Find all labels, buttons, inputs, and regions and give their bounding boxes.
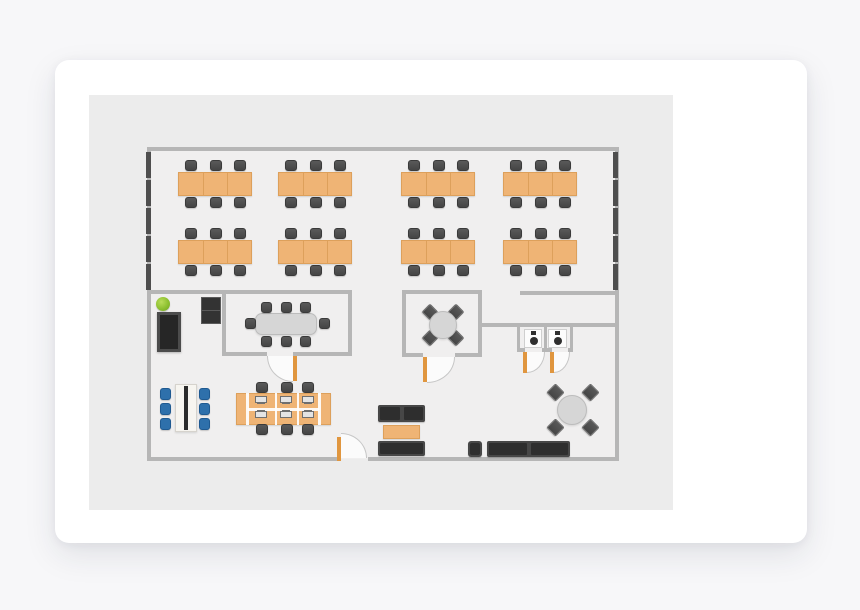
window: [146, 208, 151, 234]
chair: [302, 424, 314, 435]
window: [613, 236, 618, 262]
chair: [160, 388, 171, 400]
wall: [520, 291, 619, 295]
desk-chair: [185, 160, 197, 171]
computer-monitor: [301, 396, 315, 404]
desk-chair: [510, 197, 522, 208]
wall: [455, 353, 482, 357]
armchair: [468, 441, 482, 457]
desk-cluster: [503, 240, 577, 264]
desk-chair: [185, 265, 197, 276]
desk-chair: [535, 228, 547, 239]
desk-chair: [510, 160, 522, 171]
desk-chair: [535, 197, 547, 208]
wall: [147, 290, 226, 294]
desk-chair: [310, 160, 322, 171]
desk-chair: [234, 197, 246, 208]
wall: [402, 290, 406, 357]
chair: [256, 382, 268, 393]
chair: [160, 418, 171, 430]
desk-chair: [433, 228, 445, 239]
toilet: [529, 331, 538, 346]
window: [146, 236, 151, 262]
wall: [147, 457, 341, 461]
round-table: [429, 311, 457, 339]
desk-chair: [310, 197, 322, 208]
door-leaf: [523, 352, 527, 373]
desk-chair: [408, 228, 420, 239]
desk-chair: [234, 265, 246, 276]
window: [613, 264, 618, 290]
wall: [482, 323, 619, 327]
wall: [222, 290, 352, 294]
chair: [261, 336, 272, 347]
chair: [160, 403, 171, 415]
window: [146, 152, 151, 178]
window: [146, 264, 151, 290]
computer-monitor: [279, 396, 293, 404]
desk-chair: [210, 160, 222, 171]
desk-chair: [185, 197, 197, 208]
computer-monitor: [254, 410, 268, 418]
desk-chair: [285, 160, 297, 171]
desk-chair: [510, 228, 522, 239]
coffee-table: [383, 425, 420, 439]
computer-monitor: [301, 410, 315, 418]
desk-chair: [234, 160, 246, 171]
desk-chair: [408, 197, 420, 208]
floorplan-card: [55, 60, 807, 543]
chair: [319, 318, 330, 329]
desk-chair: [559, 265, 571, 276]
desk-cluster: [178, 172, 252, 196]
desk-cluster: [401, 240, 475, 264]
desk-chair: [285, 228, 297, 239]
plant: [156, 297, 170, 311]
door-leaf: [550, 352, 554, 373]
sofa: [378, 405, 425, 422]
chair: [281, 336, 292, 347]
page-background: { "palette": { "pagebg":"#f7f7f9","cardb…: [0, 0, 860, 610]
chair: [256, 424, 268, 435]
floorplan-canvas: [89, 95, 673, 510]
desk-chair: [535, 265, 547, 276]
desk-cluster: [401, 172, 475, 196]
wall: [402, 290, 482, 294]
computer-monitor: [279, 410, 293, 418]
toilet: [553, 331, 562, 346]
storage-cabinet: [201, 297, 223, 325]
chair: [281, 424, 293, 435]
chair: [199, 403, 210, 415]
chair: [302, 382, 314, 393]
desk-chair: [210, 197, 222, 208]
desk-chair: [310, 265, 322, 276]
desk-chair: [334, 160, 346, 171]
desk-chair: [535, 160, 547, 171]
chair: [300, 302, 311, 313]
conference-table: [255, 313, 317, 335]
wall: [147, 147, 619, 151]
desk-chair: [433, 197, 445, 208]
desk-chair: [559, 228, 571, 239]
desk-chair: [408, 265, 420, 276]
wall: [368, 457, 619, 461]
wall: [293, 352, 352, 356]
sofa: [487, 441, 570, 457]
desk-chair: [234, 228, 246, 239]
round-table: [557, 395, 587, 425]
desk-chair: [457, 197, 469, 208]
sofa: [378, 441, 425, 456]
desk-chair: [457, 160, 469, 171]
desk-chair: [433, 160, 445, 171]
computer-monitor: [254, 396, 268, 404]
desk-cluster: [503, 172, 577, 196]
wall: [348, 290, 352, 356]
door-leaf: [423, 357, 427, 382]
meeting-table: [175, 384, 197, 432]
desk-chair: [185, 228, 197, 239]
desk-chair: [510, 265, 522, 276]
chair: [261, 302, 272, 313]
desk-chair: [433, 265, 445, 276]
desk-chair: [210, 228, 222, 239]
door-leaf: [293, 356, 297, 381]
wall: [402, 353, 423, 357]
chair: [281, 382, 293, 393]
desk-chair: [559, 160, 571, 171]
door-leaf: [337, 437, 341, 461]
desk-chair: [408, 160, 420, 171]
desk-chair: [457, 228, 469, 239]
desk-chair: [334, 265, 346, 276]
desk-chair: [334, 197, 346, 208]
desk-chair: [334, 228, 346, 239]
chair: [199, 388, 210, 400]
bookcase: [157, 312, 181, 352]
chair: [281, 302, 292, 313]
desk-cluster: [278, 240, 352, 264]
chair: [199, 418, 210, 430]
desk-chair: [285, 265, 297, 276]
window: [146, 180, 151, 206]
chair: [245, 318, 256, 329]
desk-chair: [285, 197, 297, 208]
desk-cluster: [278, 172, 352, 196]
window: [613, 180, 618, 206]
window: [613, 208, 618, 234]
desk-chair: [457, 265, 469, 276]
chair: [300, 336, 311, 347]
wall: [222, 352, 267, 356]
desk-cluster: [178, 240, 252, 264]
desk-chair: [310, 228, 322, 239]
desk-chair: [559, 197, 571, 208]
desk-chair: [210, 265, 222, 276]
window: [613, 152, 618, 178]
